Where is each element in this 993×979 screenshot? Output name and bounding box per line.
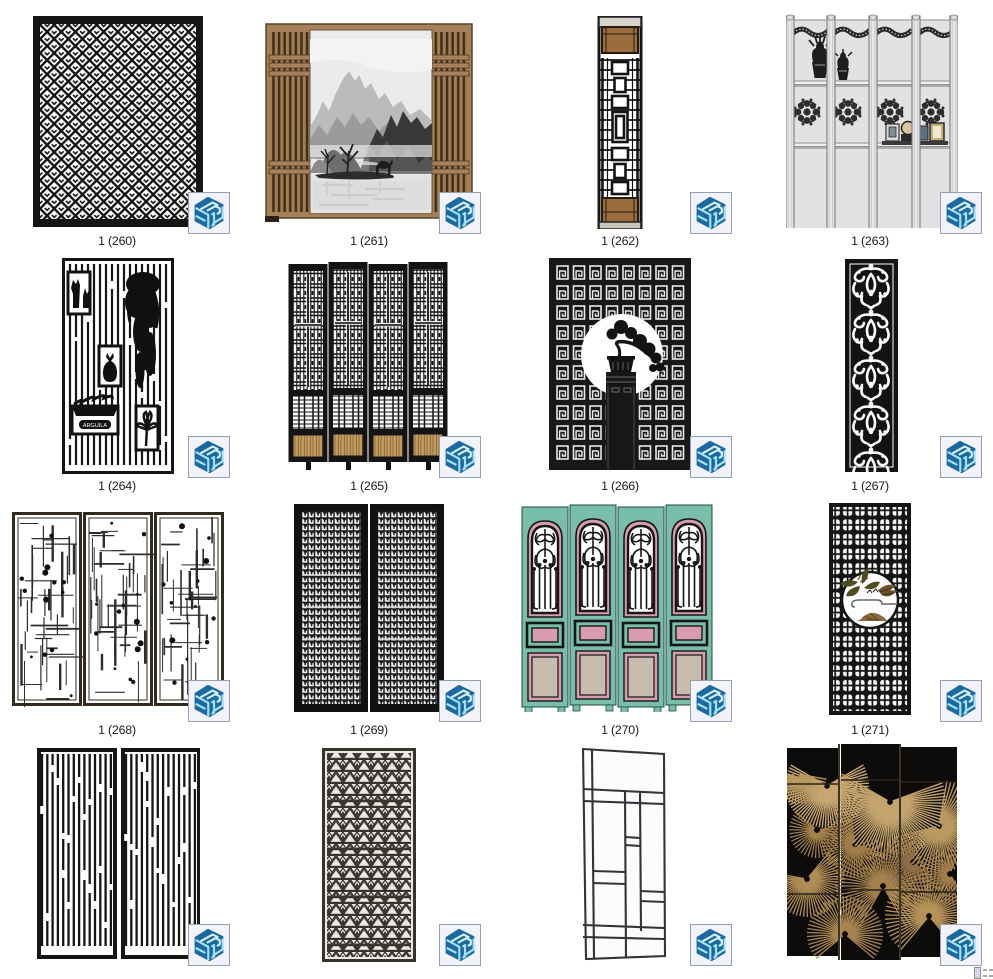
svg-text:ARGUILA: ARGUILA [83, 423, 107, 429]
